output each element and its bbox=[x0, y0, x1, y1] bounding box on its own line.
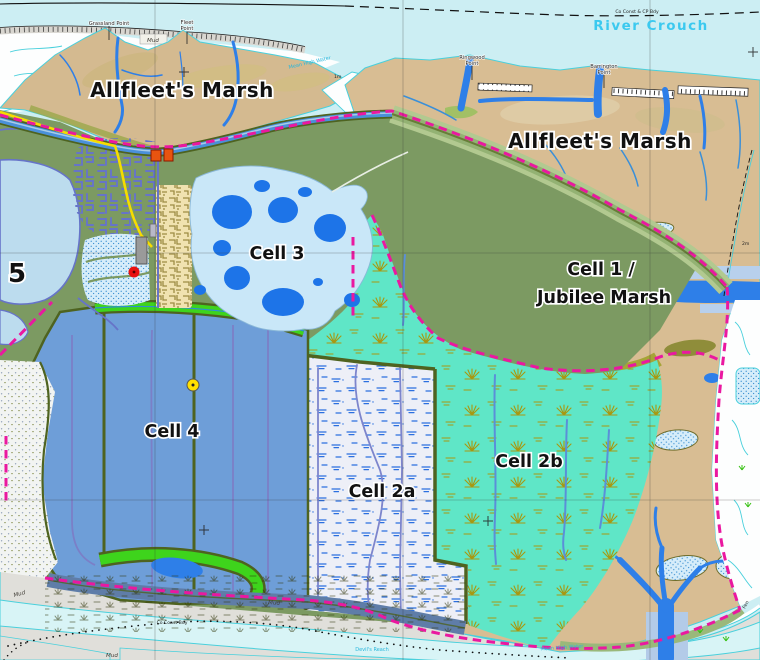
map-canvas: Allfleet's Marsh Allfleet's Marsh Cell 1… bbox=[0, 0, 760, 660]
label-cell5-partial: 5 bbox=[8, 259, 26, 289]
cell4-region bbox=[20, 306, 308, 604]
label-contour-1m: 1m bbox=[334, 74, 342, 80]
label-co-const-cp-bdy: Co Const & CP Bdy bbox=[615, 9, 659, 15]
label-mud-s2: Mud bbox=[106, 653, 118, 659]
label-allfleets-marsh-east: Allfleet's Marsh bbox=[508, 129, 692, 153]
label-mud-s1: Mud bbox=[268, 600, 281, 607]
label-mud-coast: Mud bbox=[147, 38, 159, 44]
label-cell3: Cell 3 bbox=[250, 244, 305, 264]
label-cell2b: Cell 2b bbox=[495, 452, 563, 472]
label-grassland-point: Grassland Point bbox=[89, 21, 129, 27]
label-cell2a: Cell 2a bbox=[349, 482, 416, 502]
label-cell1-line2: Jubilee Marsh bbox=[536, 288, 671, 308]
label-co-const-bdy: Co Const Bdy bbox=[157, 620, 188, 626]
label-barrington-point-2: Point bbox=[598, 70, 611, 76]
building-square-1 bbox=[151, 150, 161, 161]
cream-lagoon-maze bbox=[156, 185, 192, 308]
label-contour-2m: 2m bbox=[742, 241, 750, 247]
label-river-crouch: River Crouch bbox=[593, 18, 708, 34]
label-allfleets-marsh-west: Allfleet's Marsh bbox=[90, 78, 274, 102]
wallasea-island-map: Allfleet's Marsh Allfleet's Marsh Cell 1… bbox=[0, 0, 760, 660]
label-ringwood-point-2: Point bbox=[466, 61, 479, 67]
label-cell1-line1: Cell 1 / bbox=[567, 260, 635, 280]
building-marker bbox=[136, 237, 147, 264]
label-cell4: Cell 4 bbox=[145, 422, 200, 442]
building-square-2 bbox=[164, 149, 173, 161]
label-devils-reach: Devil's Reach bbox=[355, 647, 389, 653]
label-fleet-point-2: Point bbox=[181, 26, 194, 32]
